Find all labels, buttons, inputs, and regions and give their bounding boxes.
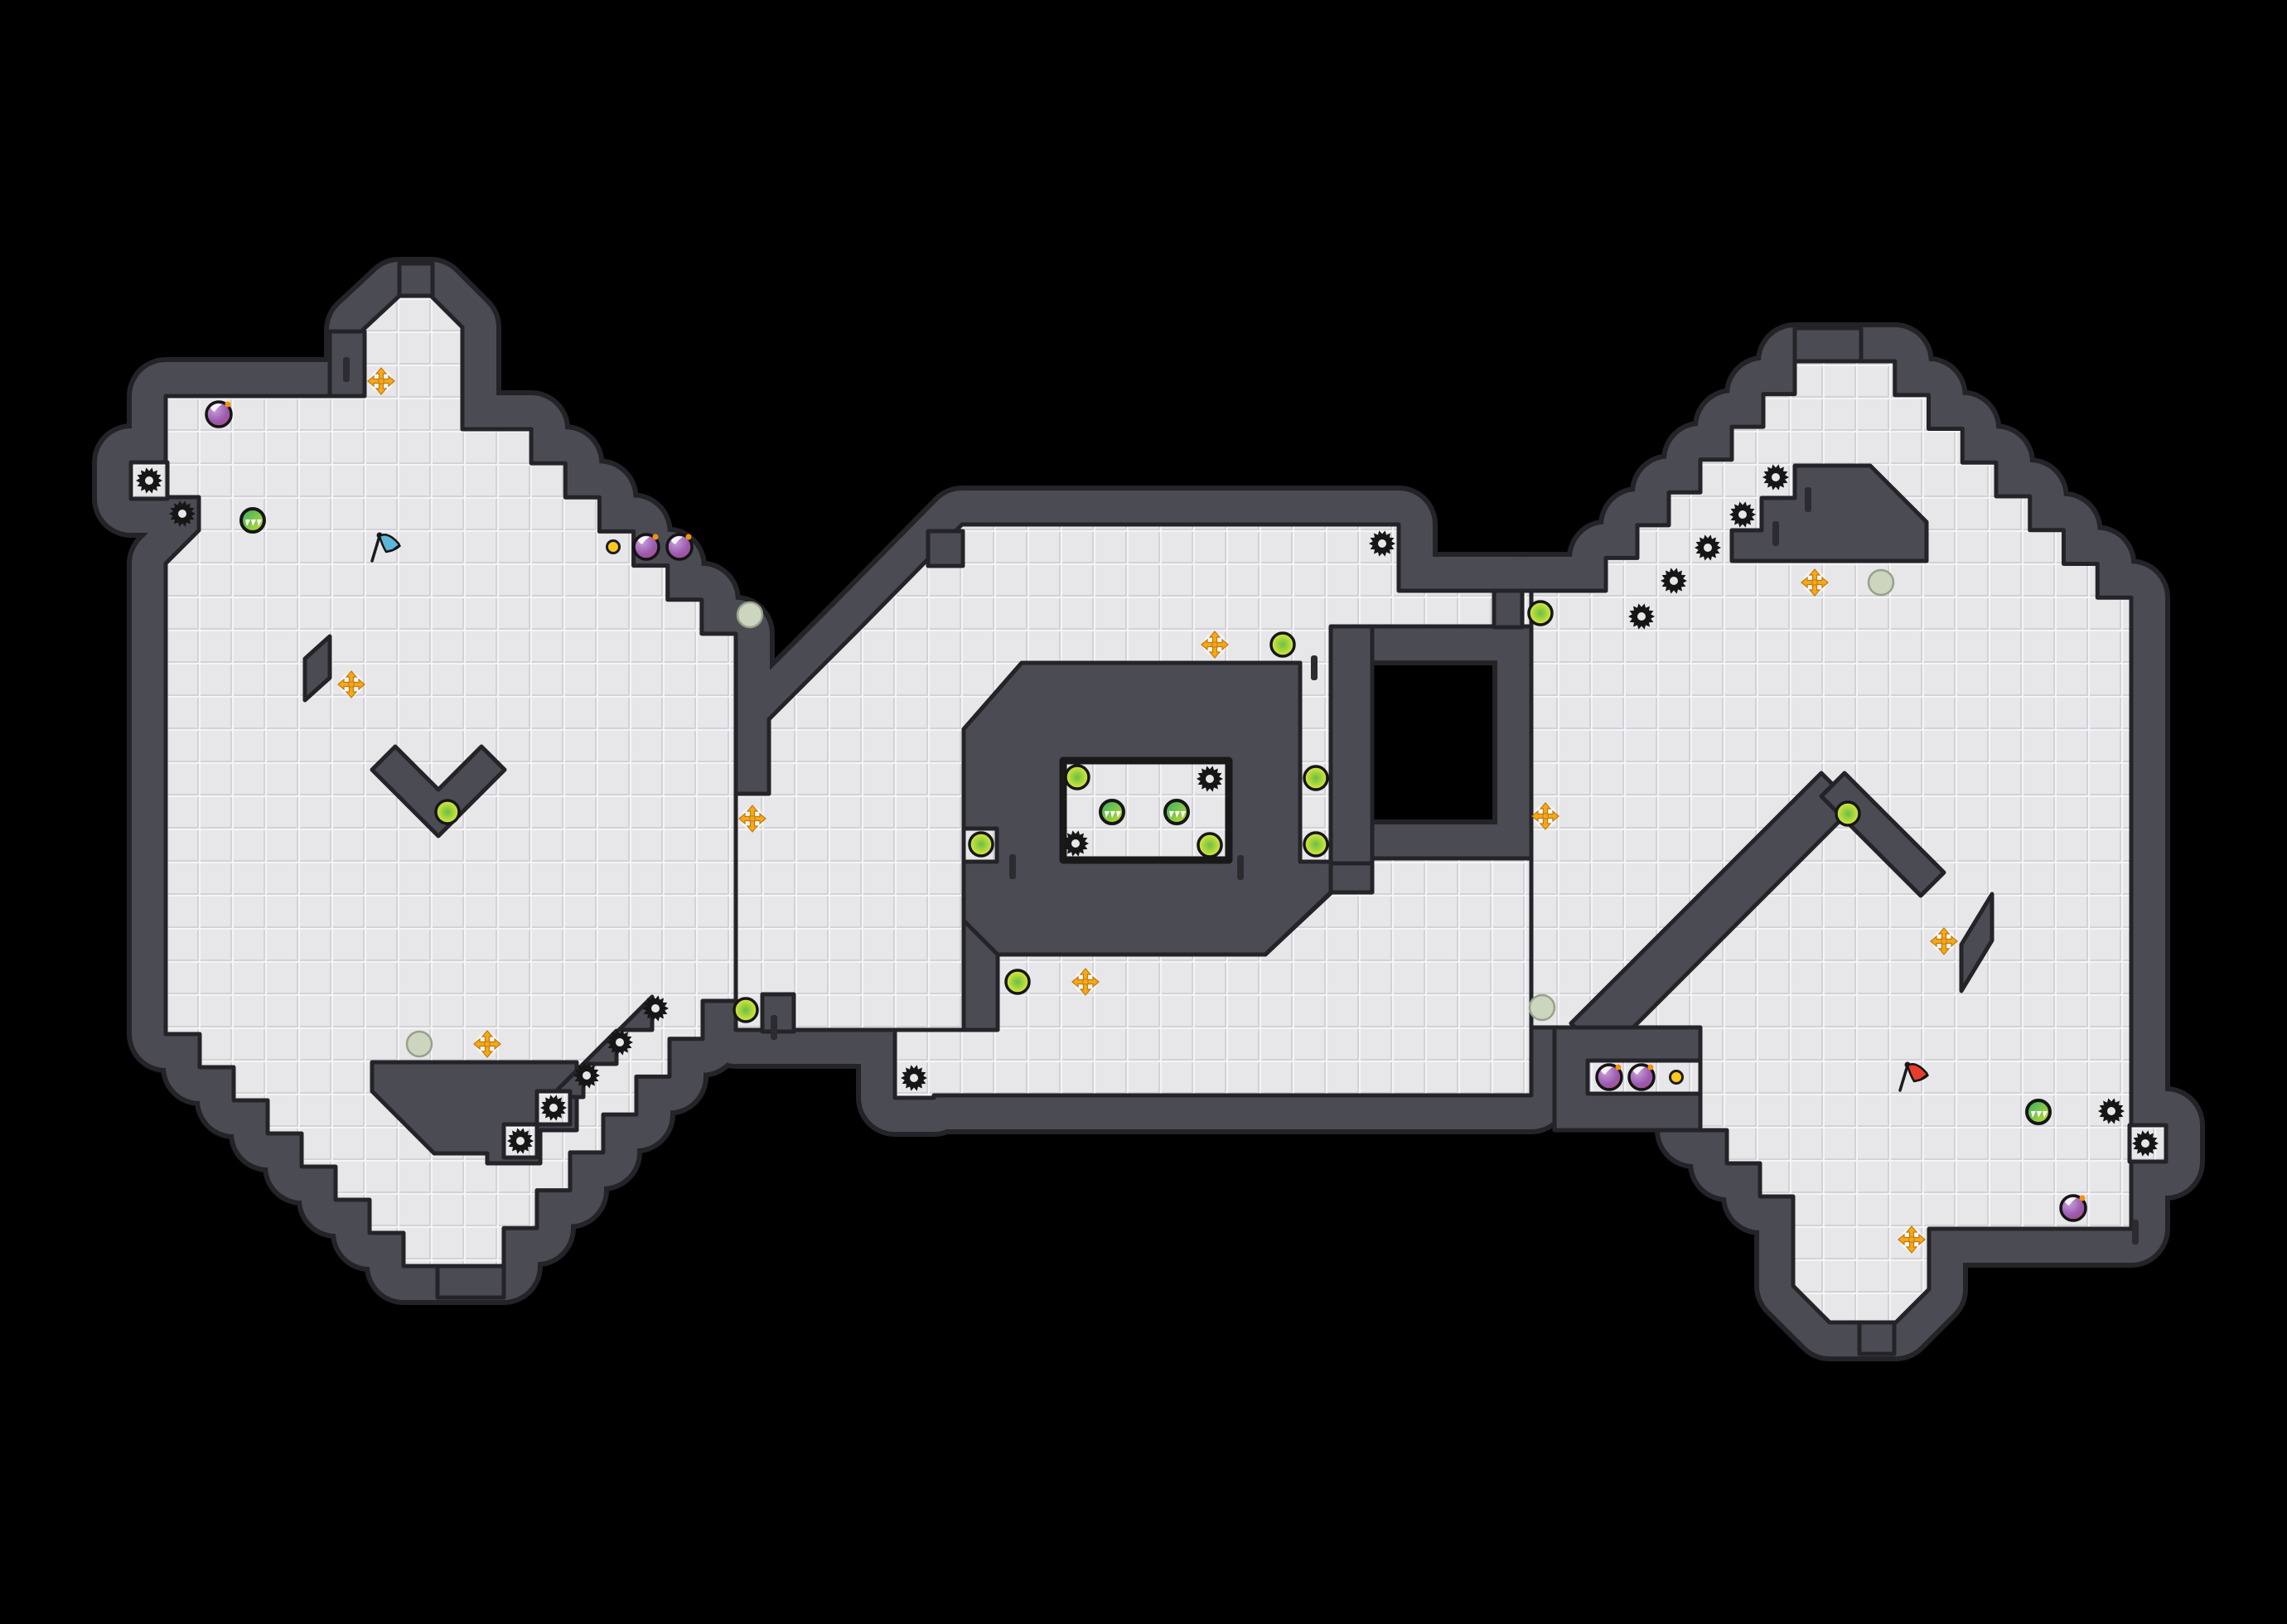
lime-orb-pickup[interactable]	[1066, 766, 1089, 789]
lime-orb-pickup[interactable]	[969, 833, 993, 856]
lime-orb-pickup[interactable]	[436, 800, 459, 824]
wall-notch-bar	[1237, 855, 1244, 880]
wall-notch-bar	[1009, 854, 1016, 879]
spawn-pale-circle	[1530, 995, 1554, 1020]
bomb-pickup[interactable]	[1597, 1065, 1622, 1090]
green-teeth-orb-pickup[interactable]	[1165, 800, 1188, 824]
wall-notch-bar	[771, 1015, 777, 1040]
button-dot[interactable]	[1671, 1071, 1683, 1084]
bomb-pickup[interactable]	[1629, 1065, 1654, 1090]
wall-cap-left-peak	[399, 263, 433, 296]
green-teeth-orb-pickup[interactable]	[2027, 1100, 2050, 1124]
lime-orb-pickup[interactable]	[1304, 766, 1327, 790]
bomb-pickup[interactable]	[2061, 1196, 2086, 1221]
spawn-pale-circle	[737, 602, 762, 627]
wall-notch-bar	[2132, 1220, 2139, 1245]
wall-notch-bar	[1311, 655, 1318, 680]
bomb-pickup[interactable]	[206, 402, 231, 428]
wall-tower-nub	[762, 994, 794, 1032]
bomb-pickup[interactable]	[667, 534, 692, 560]
wall-strip-right-fill	[1331, 626, 1372, 863]
spawn-pale-circle	[407, 1032, 432, 1056]
green-teeth-orb-pickup[interactable]	[241, 509, 264, 532]
lime-orb-pickup[interactable]	[1304, 833, 1327, 856]
green-teeth-orb-pickup[interactable]	[1100, 800, 1124, 824]
lime-orb-pickup[interactable]	[1006, 970, 1029, 993]
lime-orb-pickup[interactable]	[1529, 602, 1552, 625]
wall-notch-bar	[1772, 521, 1779, 546]
lime-orb-pickup[interactable]	[1198, 834, 1221, 857]
lime-orb-pickup[interactable]	[1271, 633, 1294, 656]
spawn-pale-circle	[1869, 570, 1893, 595]
wall-notch-bar	[343, 357, 350, 382]
wall-corridor-corner-step	[928, 531, 963, 566]
map-viewport	[0, 0, 2287, 1624]
wall-cap-right-tip	[1859, 1322, 1894, 1354]
level-map-svg	[0, 0, 2287, 1624]
wall-notch-bar	[1805, 487, 1811, 512]
wall-cap-right-peak	[1795, 328, 1861, 361]
bomb-pickup[interactable]	[634, 534, 659, 560]
lime-orb-pickup[interactable]	[1836, 802, 1859, 825]
wall-corridor-tooth	[1494, 591, 1522, 627]
lime-orb-pickup[interactable]	[734, 998, 757, 1022]
button-dot[interactable]	[607, 541, 620, 553]
wall-cap-left-tip	[438, 1266, 504, 1298]
